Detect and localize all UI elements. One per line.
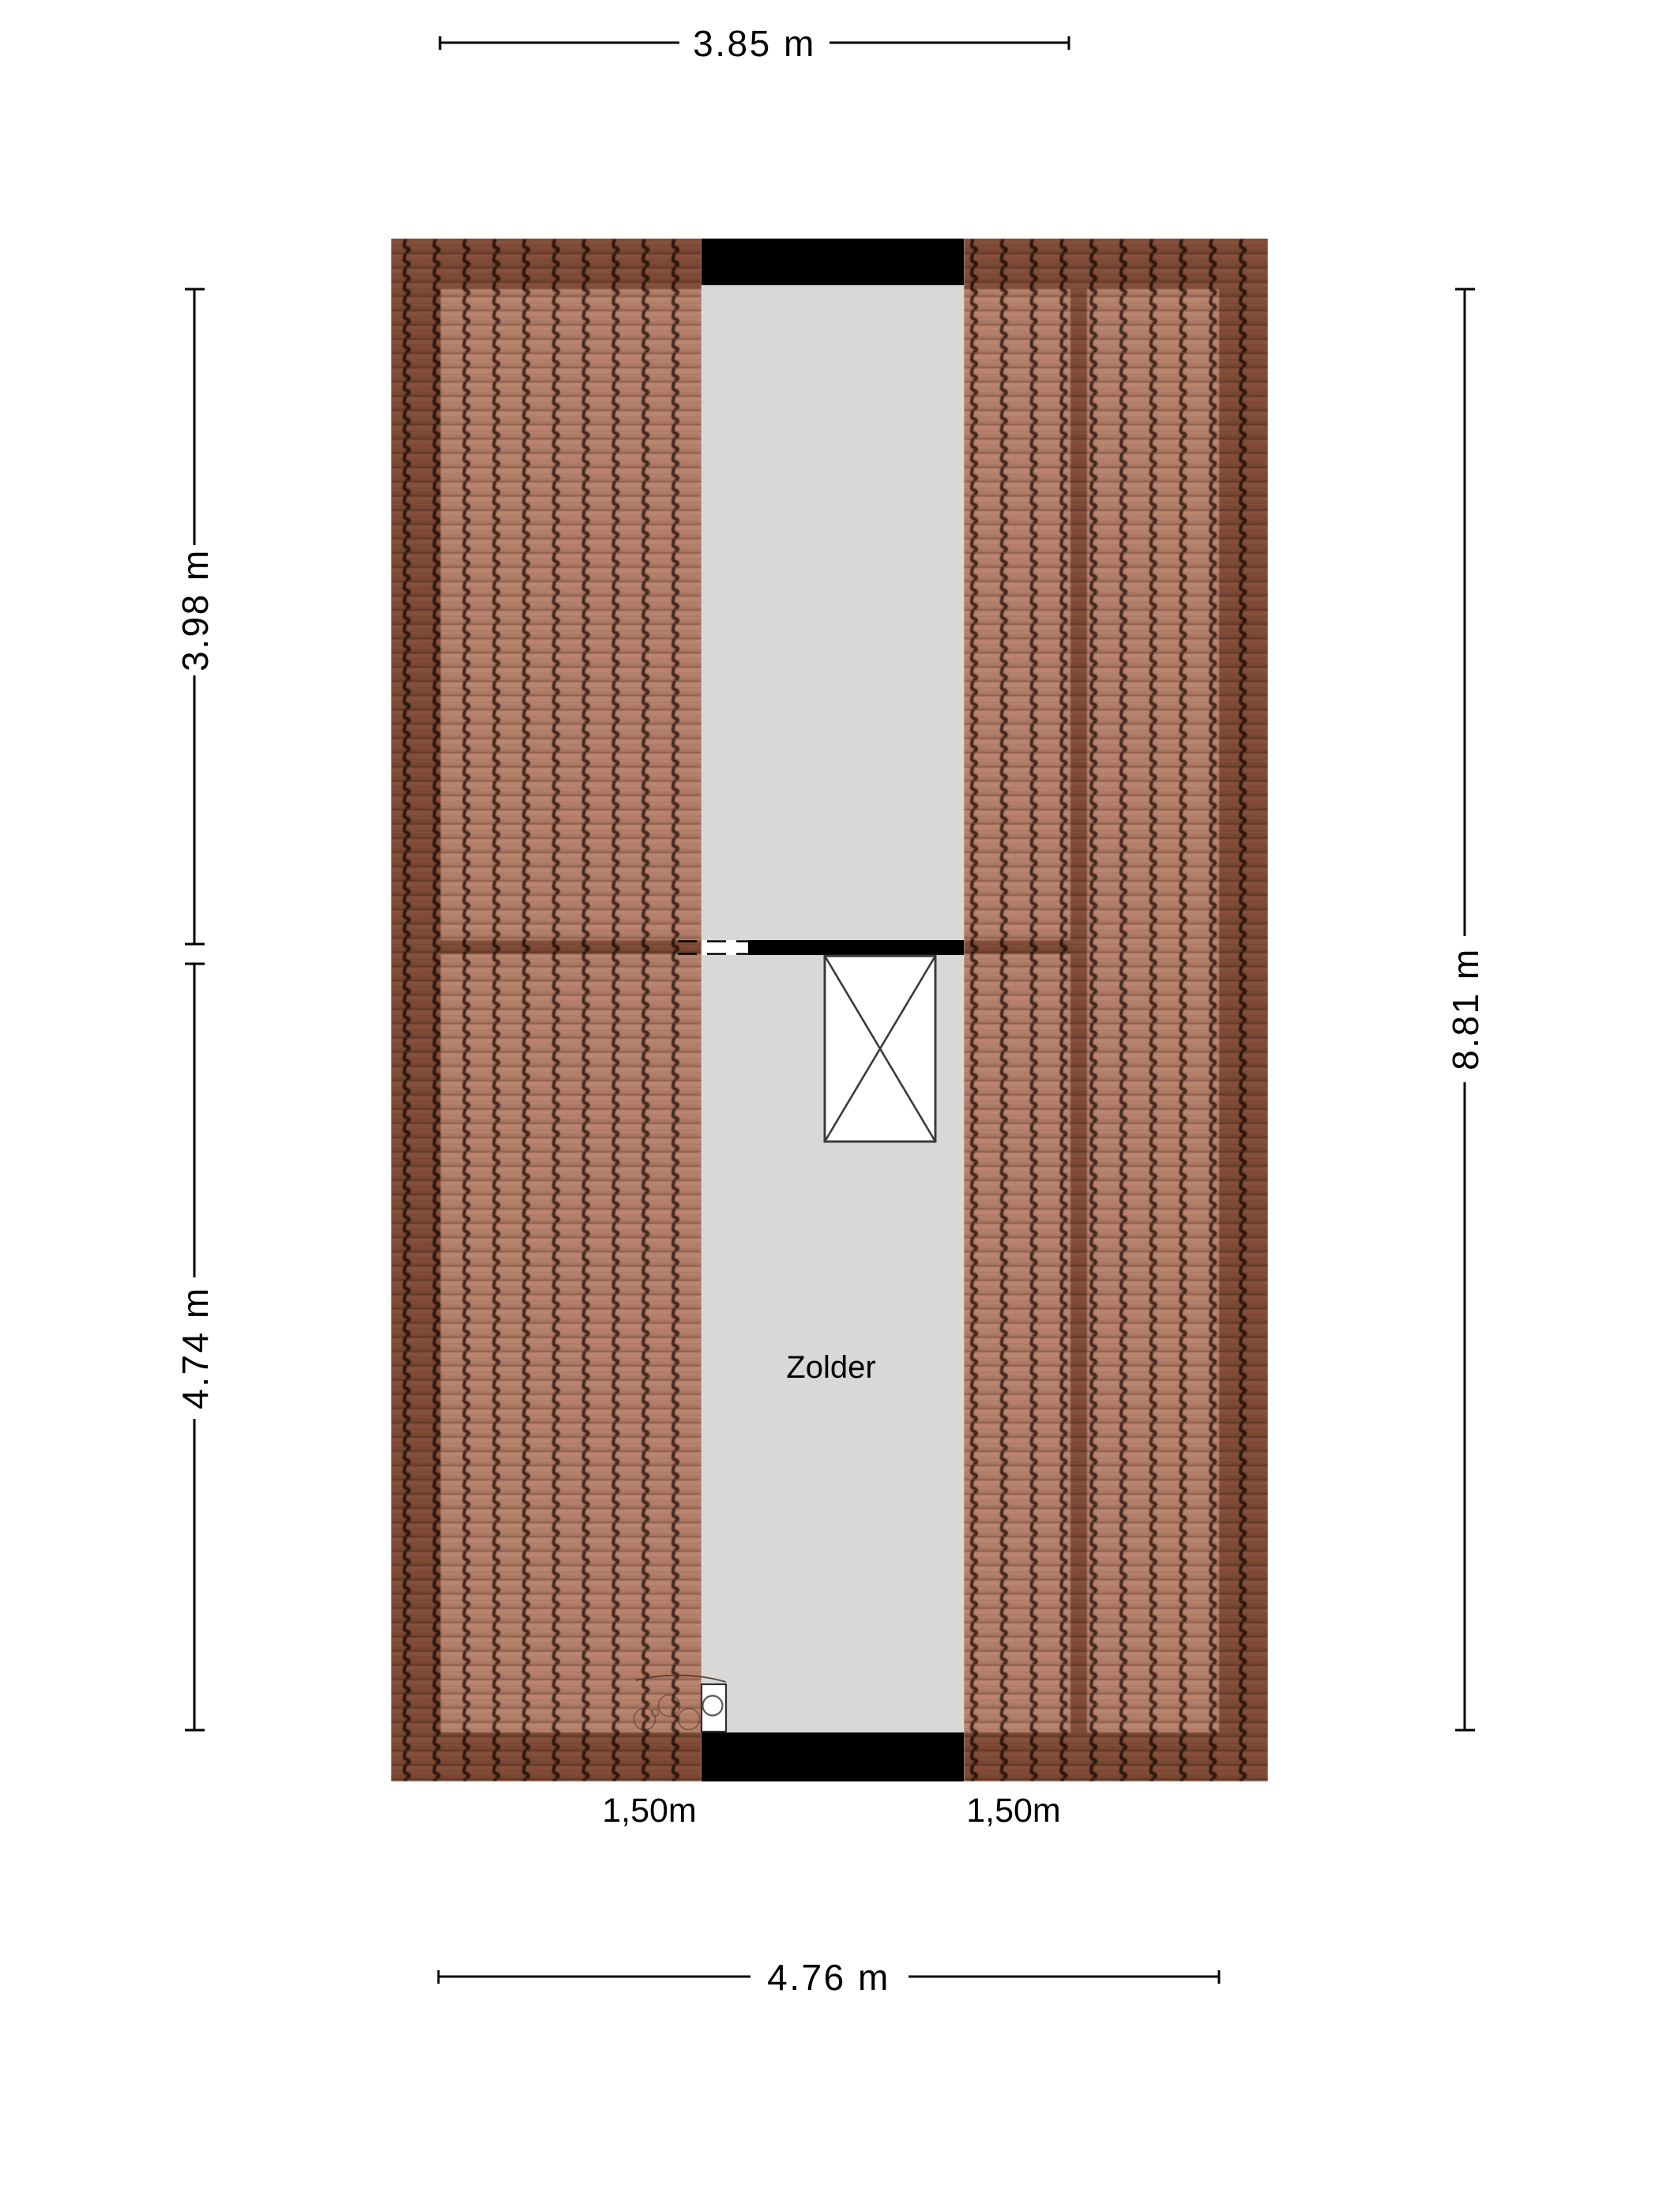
svg-text:3.85 m: 3.85 m — [693, 23, 816, 64]
svg-text:3.98 m: 3.98 m — [175, 548, 216, 671]
svg-text:8.81 m: 8.81 m — [1445, 947, 1486, 1070]
svg-text:1,50m: 1,50m — [966, 1792, 1061, 1830]
svg-text:Zolder: Zolder — [786, 1350, 875, 1385]
svg-text:4.74 m: 4.74 m — [175, 1286, 216, 1409]
svg-text:1,50m: 1,50m — [602, 1792, 697, 1830]
svg-text:4.76 m: 4.76 m — [767, 1957, 890, 1998]
